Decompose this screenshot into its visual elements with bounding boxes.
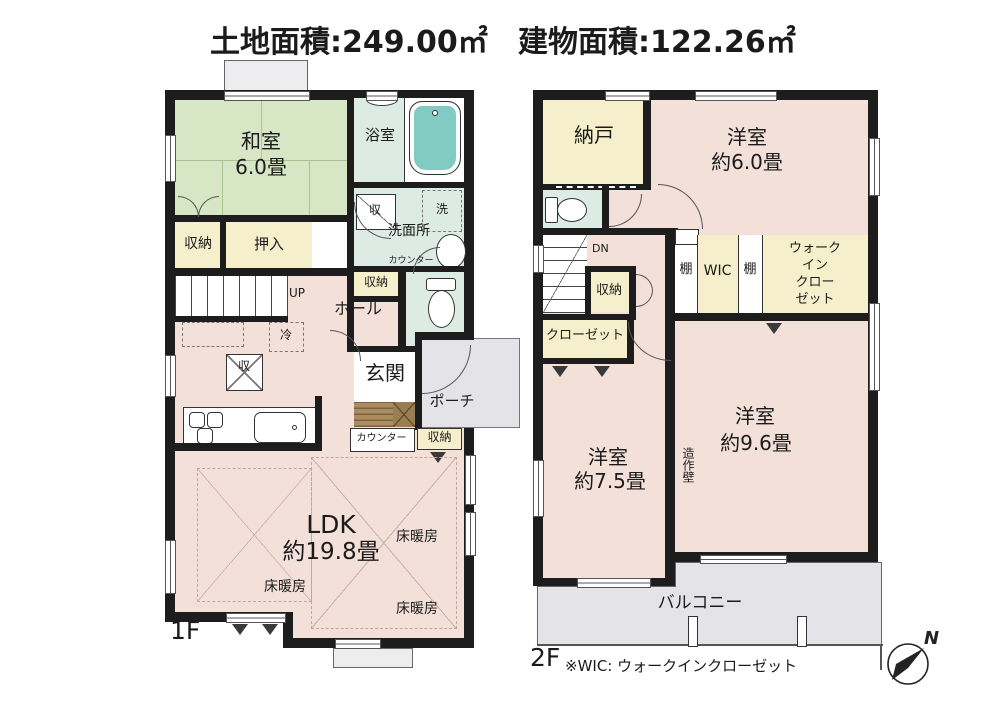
window — [869, 138, 880, 196]
window — [605, 91, 650, 101]
washroom-label: 洗面所 — [382, 224, 436, 240]
land-area-title: 土地面積:249.00㎡ — [210, 26, 500, 62]
room96-size-label: 約9.6畳 — [704, 432, 808, 454]
room75-size-label: 約7.5畳 — [558, 470, 662, 492]
wic-note: ※WIC: ウォークインクローゼット — [565, 658, 835, 675]
terrace-step — [333, 648, 413, 668]
hall-label: ホール — [326, 300, 390, 318]
kitchen-cabinet-icon — [182, 322, 244, 347]
bathroom-label: 浴室 — [356, 127, 404, 144]
compass-north-label: N — [924, 628, 939, 649]
window — [465, 455, 476, 505]
window — [165, 540, 176, 594]
washitsu-label: 和室 — [233, 130, 289, 152]
staircase-2f — [543, 235, 587, 313]
wall — [415, 338, 422, 430]
wall — [533, 358, 634, 364]
ldk-label: LDK — [292, 511, 370, 539]
door-mark — [232, 624, 248, 635]
window — [465, 512, 476, 556]
shelf-left-label: 棚 — [677, 263, 695, 278]
stove-burner — [197, 428, 213, 444]
faucet-dot — [432, 110, 438, 116]
wall — [315, 396, 322, 451]
zousaku-wall-label: 造作壁 — [676, 434, 694, 496]
window — [165, 135, 176, 182]
wic-line: イン — [764, 257, 866, 274]
tatami-line — [309, 160, 310, 215]
wic-line: クロー — [764, 274, 866, 291]
wall — [643, 90, 651, 190]
washitsu-size-label: 6.0畳 — [221, 156, 301, 178]
genkan-label: 玄関 — [357, 362, 413, 384]
wall — [585, 266, 591, 314]
room75-label: 洋室 — [578, 446, 638, 468]
door-mark — [262, 624, 278, 635]
floor-1f-label: 1F — [170, 617, 212, 645]
bay-window — [224, 60, 308, 92]
wall — [533, 228, 678, 235]
balcony-post — [797, 616, 807, 647]
building-area-title: 建物面積:122.26㎡ — [518, 26, 808, 62]
entrance-counter-label: カウンター — [351, 433, 412, 444]
divider — [404, 98, 405, 182]
sink-drain — [292, 425, 297, 430]
kitchen-sink — [254, 412, 306, 443]
wall — [398, 266, 406, 352]
divider — [762, 235, 763, 313]
wall — [415, 332, 474, 340]
storage-icon-label: 収 — [361, 204, 389, 217]
washroom-storage-label: 収納 — [354, 276, 398, 289]
washroom-sink — [436, 234, 466, 269]
wall — [175, 268, 347, 276]
window — [533, 460, 544, 517]
room6-size-label: 約6.0畳 — [692, 151, 802, 173]
storage-label: 収納 — [176, 237, 220, 253]
storage-2f-label: 収納 — [592, 284, 626, 299]
floorplan-canvas: 土地面積:249.00㎡ 建物面積:122.26㎡ — [0, 0, 1000, 707]
pantry-icon-label: 収 — [230, 360, 258, 373]
washitsu-entry — [312, 222, 347, 268]
window — [226, 613, 286, 623]
room96-label: 洋室 — [724, 405, 786, 427]
nando-label: 納戸 — [556, 124, 632, 146]
wic-line: ウォーク — [764, 240, 866, 257]
closet-label: クローゼット — [545, 329, 625, 344]
divider — [738, 235, 739, 313]
wall — [665, 228, 675, 586]
door-mark — [552, 366, 568, 377]
counter-label: カウンター — [386, 256, 436, 266]
window — [165, 355, 176, 397]
floor-heating-label: 床暖房 — [390, 530, 444, 546]
shelf-x-box — [675, 229, 699, 245]
wic-line: ゼット — [764, 291, 866, 308]
toilet-1f-bowl — [428, 290, 455, 328]
floor-heating-label: 床暖房 — [258, 580, 312, 596]
staircase-1f — [175, 276, 288, 316]
nando-dashed-opening — [556, 186, 636, 188]
ldk-size-label: 約19.8畳 — [262, 540, 400, 566]
floor-heating-label: 床暖房 — [390, 602, 444, 618]
stairs-up-label: UP — [289, 287, 317, 300]
window — [224, 91, 310, 101]
entrance-storage-label: 収納 — [417, 431, 462, 444]
wall — [175, 443, 322, 451]
door-mark — [594, 366, 610, 377]
balcony-label: バルコニー — [643, 594, 757, 613]
porch-label: ポーチ — [424, 393, 480, 410]
genkan-step-box — [393, 402, 415, 427]
toilet-2f-bowl — [557, 198, 587, 222]
window — [700, 555, 787, 564]
window — [335, 639, 381, 649]
stove-burner — [207, 412, 223, 428]
room6-label: 洋室 — [712, 126, 782, 148]
balcony-rail — [537, 644, 883, 646]
laundry-icon-label: 洗 — [428, 203, 456, 216]
wall — [629, 266, 636, 320]
walkin-closet-label: ウォーク イン クロー ゼット — [764, 240, 866, 308]
window — [533, 245, 544, 273]
wic-small-label: WIC — [698, 264, 737, 280]
stove-burner — [189, 412, 205, 428]
door-mark — [766, 323, 782, 334]
stairs-dn-label: DN — [592, 243, 620, 255]
shelf-right-label: 棚 — [741, 263, 759, 278]
window — [577, 578, 651, 588]
oshiire-label: 押入 — [243, 236, 295, 253]
balcony-post — [688, 616, 698, 647]
wall — [675, 313, 868, 321]
fridge-icon-label: 冷 — [272, 329, 300, 342]
window — [695, 91, 777, 101]
window — [366, 91, 398, 101]
window — [869, 303, 880, 391]
compass-icon: N — [876, 606, 962, 698]
